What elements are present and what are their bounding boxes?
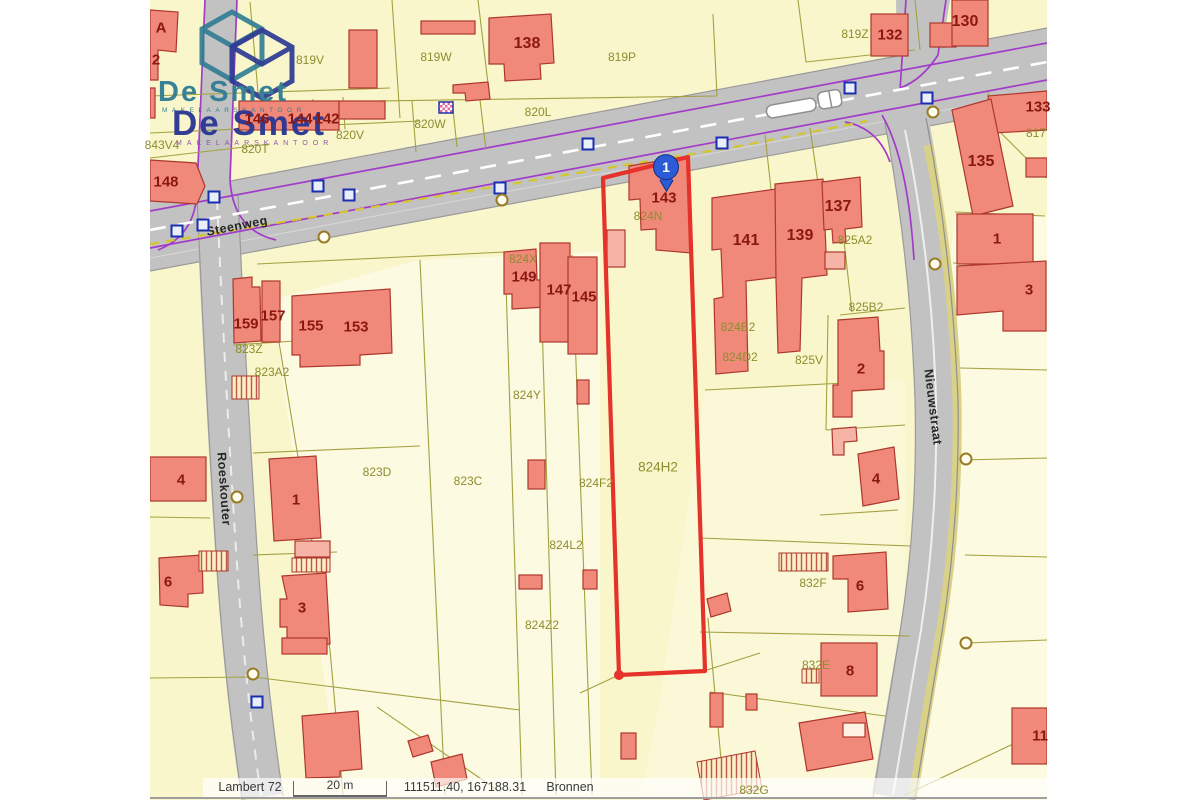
selected-parcel-marker[interactable]: 1 [653,154,679,188]
building-shed [519,575,542,589]
scale-label: 20 m [294,778,386,792]
building [540,243,570,342]
building [1026,158,1047,177]
map-svg [150,0,1047,800]
building [239,101,339,130]
map-viewer-page: De Smet MAKELAARSKANTOOR De Smet MAKELAA… [0,0,1200,800]
building [952,0,988,46]
building-shed [577,380,589,404]
map-border [150,797,1047,799]
building-shed [746,694,757,710]
building [150,160,205,204]
pin-number: 1 [653,154,679,180]
building-annex [295,541,330,557]
building [233,277,261,343]
building [1012,708,1047,764]
crs-label: Lambert 72 [205,780,295,794]
building-shed [710,693,723,727]
scale-bar: 20 m [293,781,387,797]
greenhouse [232,376,259,399]
building [262,281,280,342]
building [150,88,155,118]
building [858,447,899,506]
building [302,711,362,778]
greenhouse [802,669,819,683]
map-canvas[interactable] [150,0,1047,800]
building [871,14,908,56]
greenhouse [199,551,228,571]
building-shed [583,570,597,589]
building [339,101,385,119]
cursor-coordinates: 111511.40, 167188.31 [395,780,535,794]
building [568,257,597,354]
building [421,21,475,34]
building [349,30,377,88]
building [269,456,321,541]
greenhouse [292,558,330,572]
sources-link[interactable]: Bronnen [535,780,605,794]
building [957,214,1033,264]
building-annex [607,230,625,267]
greenhouse [779,553,828,571]
building [821,643,877,696]
utility-box-icon [439,102,453,113]
status-bar: Lambert 72 20 m 111511.40, 167188.31 Bro… [203,778,1047,799]
building [282,638,327,654]
building-annex [825,252,845,269]
building [280,573,330,647]
building-shed [621,733,636,759]
building-annex [843,723,865,737]
building [150,457,206,501]
building-shed [528,460,545,489]
